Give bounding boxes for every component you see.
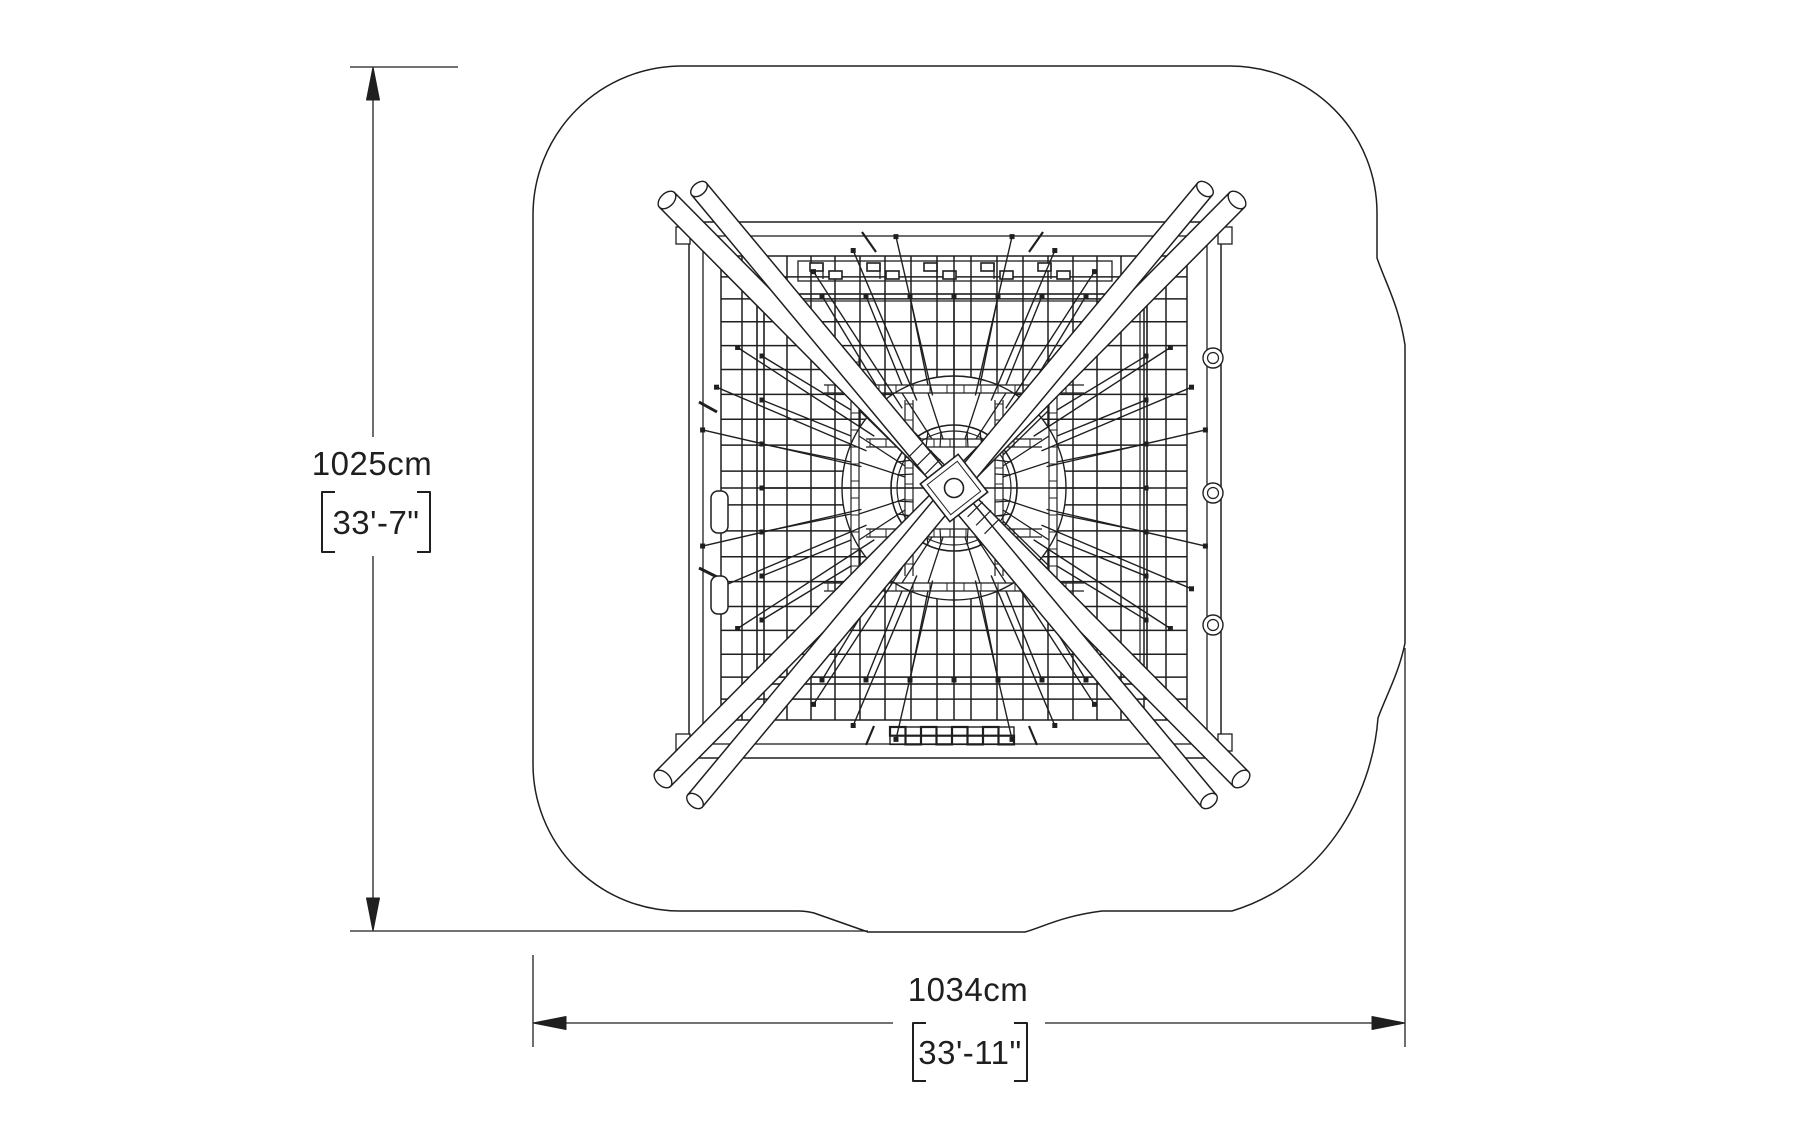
access-checkerboard (890, 727, 1014, 744)
width-dimension (533, 648, 1405, 1081)
technical-drawing: 1025cm 33'-7" 1034cm 33'-11" (0, 0, 1800, 1125)
height-dimension (322, 67, 868, 931)
net-climber-structure (651, 178, 1253, 812)
drawing-page: 1025cm 33'-7" 1034cm 33'-11" (0, 0, 1800, 1125)
height-dimension-imperial-label: 33'-7" (332, 504, 419, 541)
bolt-circles (1203, 348, 1223, 635)
width-dimension-imperial-label: 33'-11" (918, 1034, 1021, 1071)
handle-grips (711, 491, 728, 614)
clamp-strip (798, 261, 1112, 281)
height-dimension-metric-label: 1025cm (312, 445, 432, 482)
width-dimension-metric-label: 1034cm (908, 971, 1028, 1008)
